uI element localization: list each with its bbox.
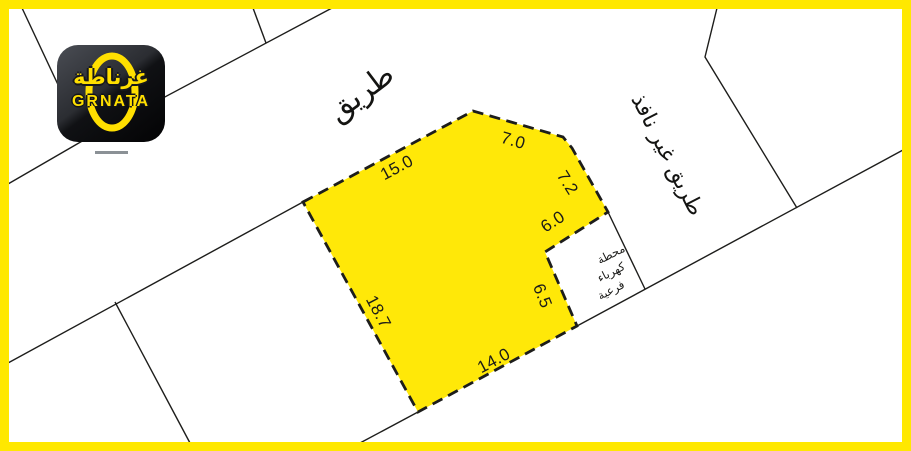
grnata-logo: غرناطة GRNATA: [57, 45, 165, 142]
boundary-branch-bottomleft: [115, 302, 190, 443]
logo-underline-dash: [95, 151, 128, 154]
deadend-road-boundary: [705, 8, 797, 208]
highlighted-plot-polygon: [303, 111, 608, 412]
plot-map-canvas: طريق طريق غير نافذ محطة كهرباء فرعية 15.…: [0, 0, 911, 451]
street-line-lower: [8, 202, 303, 363]
road-line-upper-segment: [577, 150, 903, 326]
logo-arabic-wordmark: غرناطة: [73, 65, 149, 89]
substation-label: محطة كهرباء فرعية: [596, 245, 625, 299]
road-line-lower-segment: [360, 412, 418, 443]
boundary-line-to-left-edge: [8, 140, 84, 184]
logo-latin-wordmark: GRNATA: [72, 93, 150, 111]
boundary-spur-top: [253, 8, 266, 43]
